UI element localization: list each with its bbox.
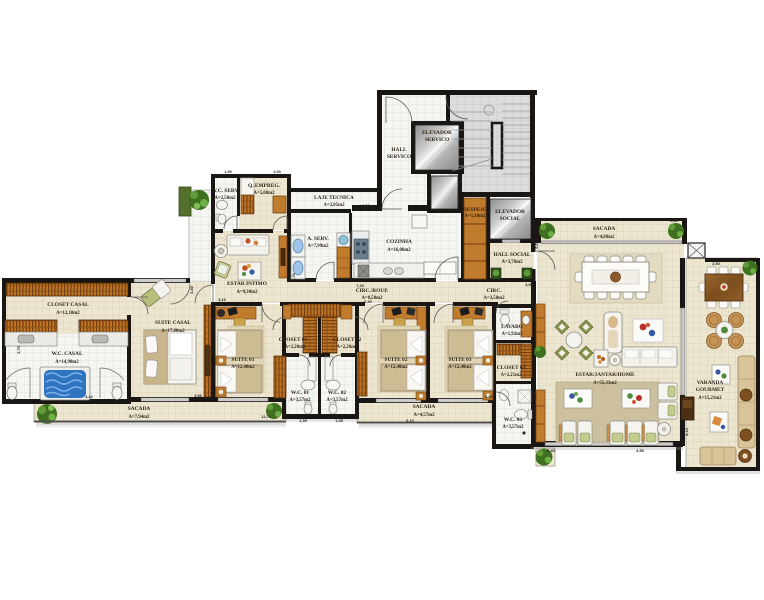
svg-text:LAJE TECNICA: LAJE TECNICA bbox=[314, 195, 354, 201]
svg-text:CLOSET 01: CLOSET 01 bbox=[279, 337, 308, 343]
svg-text:A=7,99m2: A=7,99m2 bbox=[308, 244, 330, 249]
svg-text:A=7,94m2: A=7,94m2 bbox=[129, 415, 151, 420]
svg-text:12,70: 12,70 bbox=[261, 415, 271, 419]
svg-text:A=3,57m2: A=3,57m2 bbox=[327, 398, 349, 403]
svg-text:SUITE 01: SUITE 01 bbox=[232, 357, 255, 363]
svg-text:SACADA: SACADA bbox=[128, 406, 151, 412]
svg-text:A=4,57m2: A=4,57m2 bbox=[414, 413, 436, 418]
svg-text:A=12,10m2: A=12,10m2 bbox=[56, 311, 80, 316]
svg-text:SUITE 02: SUITE 02 bbox=[385, 357, 408, 363]
svg-text:HALL: HALL bbox=[391, 147, 407, 153]
svg-text:2,75: 2,75 bbox=[17, 346, 21, 353]
svg-text:A=2,20m2: A=2,20m2 bbox=[285, 345, 307, 350]
svg-text:6,40: 6,40 bbox=[670, 219, 677, 223]
svg-text:ESTAR INTIMO: ESTAR INTIMO bbox=[227, 281, 267, 287]
svg-text:3,42: 3,42 bbox=[85, 395, 92, 399]
svg-text:CIRC.: CIRC. bbox=[486, 288, 502, 294]
svg-text:A=16,06m2: A=16,06m2 bbox=[387, 248, 411, 253]
svg-text:A=12,40m2: A=12,40m2 bbox=[448, 365, 472, 370]
svg-text:SOCIAL: SOCIAL bbox=[500, 216, 521, 222]
svg-text:Q. EMPREG.: Q. EMPREG. bbox=[248, 183, 281, 189]
svg-text:A=3,50m2: A=3,50m2 bbox=[484, 296, 506, 301]
svg-text:3,81: 3,81 bbox=[362, 204, 369, 208]
svg-text:SACADA: SACADA bbox=[593, 226, 616, 232]
svg-text:W.C. CASAL: W.C. CASAL bbox=[51, 351, 83, 357]
svg-text:3,56: 3,56 bbox=[194, 394, 201, 398]
svg-text:ESTAR/JANTAR/HOME: ESTAR/JANTAR/HOME bbox=[575, 372, 635, 378]
svg-text:2,00: 2,00 bbox=[273, 170, 280, 174]
svg-text:DESPEJO: DESPEJO bbox=[463, 207, 487, 213]
svg-text:A=3,57m2: A=3,57m2 bbox=[503, 425, 525, 430]
svg-text:1,35: 1,35 bbox=[335, 419, 342, 423]
svg-text:2,76: 2,76 bbox=[292, 273, 296, 280]
svg-text:6,30: 6,30 bbox=[364, 300, 371, 304]
svg-text:W.C. 03: W.C. 03 bbox=[504, 417, 523, 423]
svg-text:W.C. 01: W.C. 01 bbox=[291, 390, 310, 396]
svg-text:A=2,85m2: A=2,85m2 bbox=[324, 203, 346, 208]
svg-text:1,35: 1,35 bbox=[299, 419, 306, 423]
svg-text:ELEVADOR: ELEVADOR bbox=[422, 130, 452, 136]
svg-text:A=1,10m2: A=1,10m2 bbox=[465, 214, 487, 219]
svg-text:CIRC./ROUP.: CIRC./ROUP. bbox=[356, 288, 389, 294]
svg-text:A=9,30m2: A=9,30m2 bbox=[237, 290, 259, 295]
svg-text:SERVICO: SERVICO bbox=[425, 137, 449, 143]
svg-text:SUITE 03: SUITE 03 bbox=[449, 357, 472, 363]
svg-text:VARANDA: VARANDA bbox=[697, 380, 724, 386]
svg-text:LAVABO: LAVABO bbox=[501, 324, 523, 330]
svg-text:A=2,21m2: A=2,21m2 bbox=[501, 373, 523, 378]
svg-text:HALL SOCIAL: HALL SOCIAL bbox=[494, 252, 531, 258]
svg-text:A=3,70m2: A=3,70m2 bbox=[502, 260, 524, 265]
svg-text:8,15: 8,15 bbox=[685, 428, 689, 435]
svg-text:A=15,21m2: A=15,21m2 bbox=[698, 396, 722, 401]
svg-text:3,10: 3,10 bbox=[218, 298, 225, 302]
svg-text:A=17,80m2: A=17,80m2 bbox=[161, 329, 185, 334]
svg-text:CLOSET 03: CLOSET 03 bbox=[497, 365, 526, 371]
svg-text:3,40: 3,40 bbox=[190, 286, 194, 293]
svg-text:6,40: 6,40 bbox=[547, 449, 554, 453]
svg-text:0,65: 0,65 bbox=[535, 241, 539, 248]
svg-text:COZINHA: COZINHA bbox=[386, 239, 412, 245]
svg-text:ELEVADOR: ELEVADOR bbox=[495, 209, 525, 215]
svg-text:A=2,50m2: A=2,50m2 bbox=[215, 196, 237, 201]
svg-text:GOURMET: GOURMET bbox=[696, 387, 725, 393]
svg-text:SACADA: SACADA bbox=[413, 404, 436, 410]
svg-text:7,20: 7,20 bbox=[356, 284, 363, 288]
svg-text:4,55: 4,55 bbox=[636, 449, 643, 453]
svg-text:W.C. SERV: W.C. SERV bbox=[211, 188, 238, 194]
svg-text:A=12,40m2: A=12,40m2 bbox=[384, 365, 408, 370]
svg-text:W.C. 02: W.C. 02 bbox=[328, 390, 347, 396]
svg-text:6,10: 6,10 bbox=[406, 419, 413, 423]
svg-text:A=55,33m2: A=55,33m2 bbox=[593, 381, 617, 386]
svg-text:A=12,40m2: A=12,40m2 bbox=[231, 365, 255, 370]
svg-text:A=1,92m2: A=1,92m2 bbox=[502, 332, 524, 337]
svg-text:A=4,80m2: A=4,80m2 bbox=[594, 235, 616, 240]
svg-text:CLOSET 02: CLOSET 02 bbox=[333, 337, 362, 343]
svg-text:3,50: 3,50 bbox=[525, 283, 532, 287]
svg-text:2,00: 2,00 bbox=[485, 395, 492, 399]
svg-text:A=14,90m2: A=14,90m2 bbox=[55, 360, 79, 365]
svg-text:CLOSET CASAL: CLOSET CASAL bbox=[47, 302, 89, 308]
svg-text:SUITE CASAL: SUITE CASAL bbox=[155, 320, 191, 326]
svg-text:A=5,00m2: A=5,00m2 bbox=[254, 191, 276, 196]
svg-text:A. SERV.: A. SERV. bbox=[307, 236, 329, 242]
svg-text:A=2,26m2: A=2,26m2 bbox=[337, 345, 359, 350]
svg-text:1,90: 1,90 bbox=[224, 170, 231, 174]
svg-text:2,90: 2,90 bbox=[712, 262, 719, 266]
svg-text:SERVICO: SERVICO bbox=[387, 154, 411, 160]
svg-text:A=3,57m2: A=3,57m2 bbox=[290, 398, 312, 403]
